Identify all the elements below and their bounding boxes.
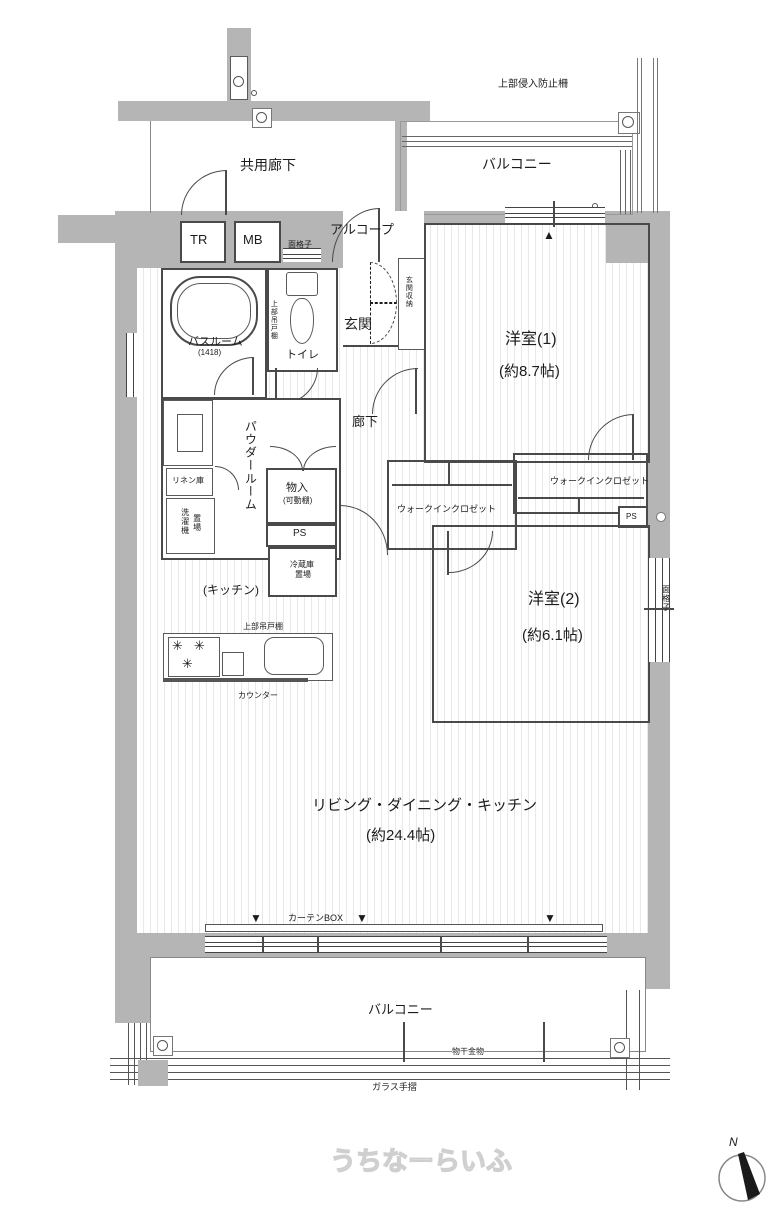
- compass-icon: N: [705, 1128, 775, 1208]
- label-lattice-toilet: 面格子: [288, 240, 312, 250]
- anchor-circle-corridor: [256, 112, 267, 123]
- balcony-top-rail-right: [620, 150, 633, 214]
- wic-right-hanger: [518, 497, 644, 499]
- label-linen: リネン庫: [172, 476, 204, 486]
- label-curtain-box: カーテンBOX: [288, 913, 343, 924]
- triangle-down-marker: ▼: [250, 911, 262, 925]
- label-upper-cabinet-toilet: 上部吊戸棚: [269, 300, 277, 340]
- window-mullion: [527, 936, 529, 953]
- anchor-circle-balcony-br: [614, 1042, 625, 1053]
- exterior-line-right-1: [637, 58, 642, 213]
- label-balcony-bottom: バルコニー: [368, 1002, 433, 1018]
- label-bedroom2-size: (約6.1帖): [522, 627, 583, 645]
- bathroom-window: [126, 333, 140, 397]
- label-toilet: トイレ: [286, 349, 319, 362]
- exterior-line-right-2: [653, 58, 658, 213]
- compass-n-label: N: [729, 1135, 738, 1149]
- triangle-down-marker: ▼: [356, 911, 368, 925]
- label-washer-l2: 置場: [192, 514, 202, 532]
- label-ldk: リビング・ダイニング・キッチン: [312, 797, 537, 815]
- balcony-top-rail: [402, 136, 632, 150]
- label-bathroom-size: (1418): [198, 348, 221, 358]
- window-mullion: [317, 936, 319, 953]
- label-powder-room: パウダールーム: [243, 420, 257, 511]
- wall-left: [115, 211, 137, 945]
- living-window-band: [205, 936, 607, 953]
- label-common-corridor: 共用廊下: [240, 157, 296, 174]
- label-intrusion-guard: 上部侵入防止柵: [498, 79, 568, 91]
- balcony-left-block: [138, 1060, 168, 1086]
- counter-edge: [163, 678, 308, 682]
- label-washer-l1: 洗濯機: [180, 508, 190, 535]
- label-mb: MB: [243, 232, 263, 248]
- wall-top-left-band: [118, 101, 430, 121]
- label-wic-left: ウォークインクロゼット: [397, 504, 496, 515]
- label-glass-rail: ガラス手摺: [372, 1082, 417, 1093]
- door-leaf-corridor-ldk: [339, 505, 341, 555]
- burner-icon: ✳: [194, 638, 205, 654]
- glass-rail-lines: [110, 1058, 670, 1084]
- kitchen-sink: [264, 637, 324, 675]
- burner-icon: ✳: [182, 656, 193, 672]
- burner-icon: ✳: [172, 638, 183, 654]
- triangle-up-marker: ▲: [543, 228, 555, 242]
- vanity-sink: [177, 414, 203, 452]
- label-laundry-hardware: 物干金物: [452, 1047, 484, 1057]
- door-leaf-bathroom: [252, 357, 254, 395]
- label-corridor: 廊下: [352, 414, 378, 430]
- label-counter: カウンター: [238, 691, 278, 701]
- toilet-lattice-window: [283, 248, 321, 262]
- window-mullion: [440, 936, 442, 953]
- label-alcove: アルコープ: [330, 222, 394, 238]
- label-ldk-size: (約24.4帖): [366, 827, 435, 845]
- label-fridge-l1: 冷蔵庫: [290, 560, 314, 570]
- door-leaf-bedroom1: [415, 368, 417, 414]
- label-entrance: 玄関: [344, 316, 372, 333]
- label-upper-cabinet-kitchen: 上部吊戸棚: [243, 622, 283, 632]
- anchor-circle-balcony-bl: [157, 1040, 168, 1051]
- bathtub-inner: [177, 283, 251, 339]
- anchor-circle-stub-small: [251, 90, 257, 96]
- wic-right-pipe: [578, 497, 580, 512]
- triangle-down-marker: ▼: [544, 911, 556, 925]
- toilet-bowl: [290, 298, 314, 344]
- label-monoire-note: (可動棚): [283, 496, 312, 506]
- door-leaf-common-corridor: [225, 170, 227, 215]
- label-wic-right: ウォークインクロゼット: [550, 476, 649, 487]
- window-mullion: [262, 936, 264, 953]
- label-fridge-l2: 置場: [295, 570, 311, 580]
- label-tr: TR: [190, 232, 207, 248]
- fixture-icon: [656, 512, 666, 522]
- label-monoire: 物入: [286, 482, 308, 495]
- wic-left-hanger: [392, 484, 512, 486]
- label-bedroom2: 洋室(2): [528, 590, 580, 609]
- label-bedroom1: 洋室(1): [505, 330, 557, 349]
- watermark: うちなーらいふ: [330, 1146, 512, 1177]
- door-leaf-bedroom2: [447, 531, 449, 575]
- label-entrance-storage: 玄関収納: [404, 276, 412, 308]
- door-arc-common-corridor: [181, 170, 227, 215]
- wic-left-pipe: [448, 462, 450, 484]
- laundry-pole-tick-2: [543, 1022, 545, 1062]
- label-ps-left: PS: [293, 528, 306, 540]
- label-bedroom1-size: (約8.7帖): [499, 363, 560, 381]
- wall-left-protrusion: [58, 215, 115, 243]
- bedroom1-window-mullion: [553, 201, 555, 227]
- label-lattice-right: 面格子: [661, 585, 671, 612]
- anchor-circle-balcony: [622, 116, 634, 128]
- stove-shelf: [222, 652, 244, 676]
- washer-box: [166, 498, 215, 554]
- label-ps-right: PS: [626, 512, 637, 522]
- label-kitchen: (キッチン): [203, 583, 259, 597]
- toilet-tank: [286, 272, 318, 296]
- corridor-left-line: [150, 121, 151, 213]
- anchor-circle-stub: [233, 76, 244, 87]
- floor-plan: ✳ ✳ ✳ 上部侵入防止柵 共用廊下 バルコニー TR MB アルコープ 面格子…: [0, 0, 775, 1208]
- bedroom1-top-window: [505, 207, 605, 224]
- laundry-pole-tick-1: [403, 1022, 405, 1062]
- label-balcony-top: バルコニー: [482, 156, 552, 173]
